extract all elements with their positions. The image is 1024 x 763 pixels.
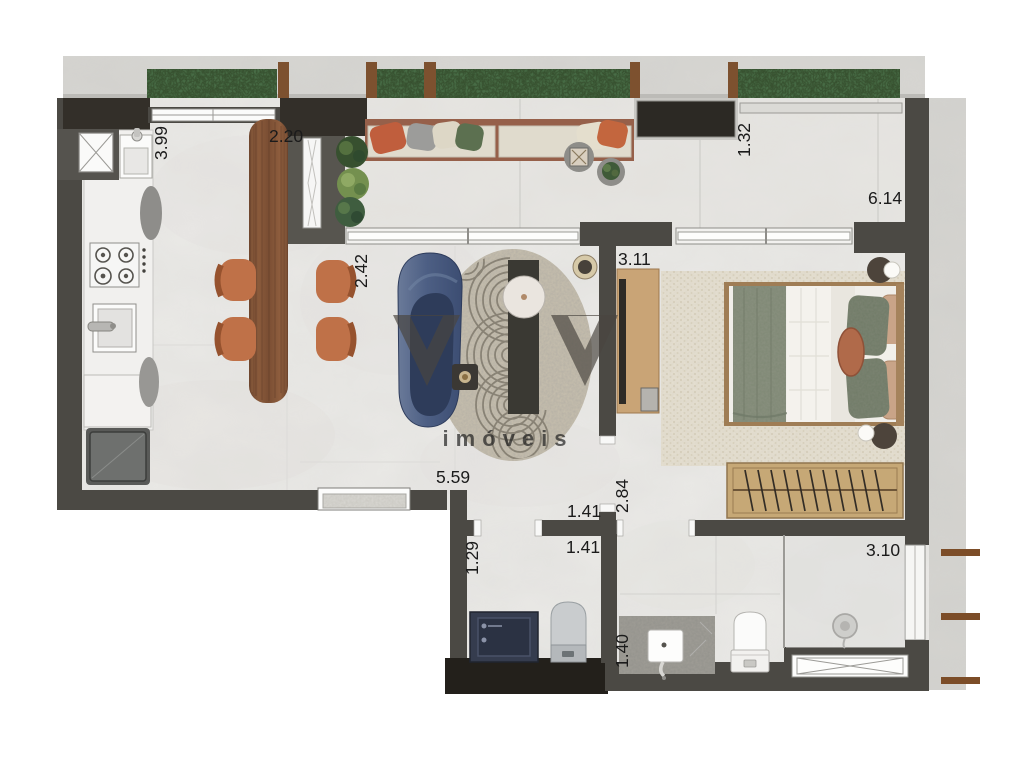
svg-text:2.84: 2.84 <box>612 479 632 513</box>
svg-text:2.20: 2.20 <box>269 126 303 146</box>
svg-text:3.10: 3.10 <box>866 540 900 560</box>
svg-text:6.14: 6.14 <box>868 188 902 208</box>
svg-text:3.11: 3.11 <box>618 249 651 269</box>
svg-text:1.40: 1.40 <box>612 634 632 668</box>
svg-text:imóveis: imóveis <box>443 426 574 451</box>
svg-text:3.99: 3.99 <box>151 126 171 160</box>
svg-text:1.32: 1.32 <box>734 123 754 157</box>
svg-text:1.41: 1.41 <box>566 537 600 557</box>
svg-text:1.29: 1.29 <box>462 541 482 575</box>
svg-text:2.42: 2.42 <box>351 254 371 288</box>
svg-text:1.41: 1.41 <box>567 501 601 521</box>
svg-text:5.59: 5.59 <box>436 467 470 487</box>
